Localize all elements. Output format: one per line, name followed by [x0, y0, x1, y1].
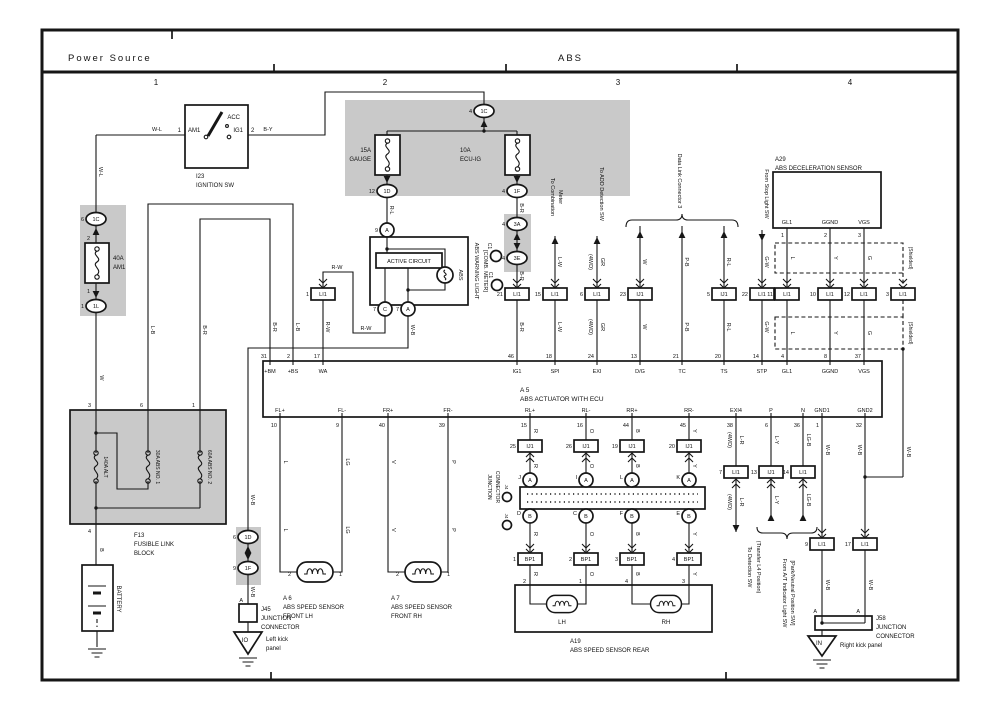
connector-id: C1 — [487, 272, 493, 279]
svg-text:B: B — [528, 514, 532, 520]
svg-text:3A: 3A — [514, 222, 521, 228]
svg-text:LI1: LI1 — [732, 470, 740, 476]
svg-text:J: J — [518, 475, 521, 481]
svg-text:+BM: +BM — [264, 369, 276, 375]
svg-text:G-W: G-W — [763, 256, 769, 268]
junction-box-rr-plus: IJ119 — [612, 440, 644, 452]
svg-text:R-W: R-W — [361, 326, 373, 332]
svg-text:20: 20 — [715, 354, 721, 360]
junction-box-rl-minus: IJ126 — [566, 440, 598, 452]
component-name: IGNITION SW — [196, 183, 234, 189]
svg-text:31: 31 — [261, 354, 267, 360]
svg-text:Y: Y — [832, 331, 838, 335]
svg-text:1C: 1C — [92, 217, 99, 223]
a19-box — [515, 585, 712, 632]
ground-location: Left kick — [266, 637, 289, 643]
pin-number: 2 — [87, 236, 90, 242]
actuator-top-pins: 31+BM 2+BS 17WA 46IG1 18SPI 24EXI 13D/G … — [261, 354, 870, 375]
svg-text:P-B: P-B — [683, 322, 689, 332]
svg-text:1D: 1D — [244, 535, 251, 541]
connector-7a: A 7 — [396, 302, 415, 316]
junction-connector-label: CONNECTOR — [494, 471, 500, 504]
svg-text:L: L — [282, 460, 288, 463]
svg-text:23: 23 — [620, 292, 626, 298]
battery: BATTERY — [82, 565, 121, 657]
svg-text:W: W — [641, 259, 647, 265]
svg-text:R: R — [532, 464, 538, 468]
junction-box-ig1: LI121 — [497, 288, 529, 300]
pin-number: 2 — [824, 233, 827, 239]
svg-text:W-B: W-B — [409, 325, 415, 336]
svg-text:R-L: R-L — [725, 258, 731, 267]
sensor-side: LH — [558, 620, 566, 626]
dlc-brace — [626, 214, 738, 227]
dest-stop-light-sw: From Stop Light SW — [763, 169, 769, 219]
pin-number: 4 — [625, 579, 628, 585]
ground-triangle — [808, 636, 836, 656]
connector-id: J4 — [504, 485, 509, 490]
svg-text:SPI: SPI — [551, 369, 560, 375]
junction-box-ts: IJ15 — [707, 288, 736, 300]
svg-text:P: P — [769, 408, 773, 414]
pin-number: 1 — [192, 403, 195, 409]
svg-text:17: 17 — [845, 542, 851, 548]
svg-text:IJ1: IJ1 — [720, 292, 727, 298]
connector-ja: AJ — [518, 473, 537, 487]
svg-text:LI1: LI1 — [861, 542, 869, 548]
svg-text:3E: 3E — [514, 256, 521, 262]
svg-text:L: L — [789, 256, 795, 259]
connector-eb: BE — [676, 509, 696, 523]
svg-text:FL+: FL+ — [275, 408, 285, 414]
svg-text:5: 5 — [707, 292, 710, 298]
dest-combination-meter: To Combination — [549, 178, 555, 216]
svg-text:14: 14 — [753, 354, 759, 360]
component-id: I23 — [196, 174, 205, 180]
column-number: 4 — [848, 78, 853, 87]
svg-text:GR: GR — [599, 258, 605, 266]
dest-detection-sw: To Detection SW — [746, 547, 752, 589]
c1-connector-mark — [491, 251, 502, 262]
section-title-power-source: Power Source — [68, 53, 152, 64]
svg-text:20: 20 — [669, 444, 675, 450]
svg-text:24: 24 — [588, 354, 594, 360]
svg-text:4: 4 — [502, 189, 505, 195]
svg-text:9: 9 — [375, 228, 378, 234]
component-name: FUSIBLE LINK — [134, 542, 174, 548]
svg-text:18: 18 — [546, 354, 552, 360]
sensor-side: RH — [662, 620, 671, 626]
pin-number: 4 — [88, 529, 91, 535]
ground-code: IO — [242, 638, 249, 644]
component-name: ABS DECELERATION SENSOR — [775, 166, 863, 172]
svg-text:+BS: +BS — [288, 369, 299, 375]
svg-text:R-W: R-W — [324, 322, 330, 334]
component-name: BATTERY — [115, 585, 121, 612]
junction-boxes-upper: LI11 LI121 LI115 LI16 IJ123 IJ15 LI122 L… — [306, 288, 915, 300]
svg-text:4: 4 — [469, 109, 472, 115]
svg-text:W-L: W-L — [97, 167, 103, 177]
pin-number: 2 — [523, 579, 526, 585]
connector-db: BD — [517, 509, 537, 523]
svg-text:LI1: LI1 — [783, 292, 791, 298]
svg-text:LI1: LI1 — [826, 292, 834, 298]
shielded-label: (Shielded) — [907, 322, 913, 345]
fuse-name: 60A ABS NO. 2 — [206, 450, 212, 484]
abs-warning-light-meter: A 9 ACTIVE CIRCUIT ABS C 7 A 7 ABS WARNI… — [370, 223, 503, 316]
fuse-name: 140A ALT — [102, 456, 108, 477]
svg-text:L-W: L-W — [556, 257, 562, 268]
svg-text:B-R: B-R — [271, 322, 277, 332]
shielded-label: (Shielded) — [907, 247, 913, 270]
svg-text:17: 17 — [314, 354, 320, 360]
svg-text:B-R: B-R — [518, 271, 524, 281]
svg-text:B: B — [634, 532, 640, 536]
dest-add-detection-sw: To ADD Detection SW — [598, 167, 604, 222]
svg-text:F: F — [620, 511, 624, 517]
svg-text:8: 8 — [824, 354, 827, 360]
pin-number: 1 — [178, 128, 182, 134]
svg-text:1D: 1D — [383, 189, 390, 195]
svg-text:1C: 1C — [480, 109, 487, 115]
svg-text:15: 15 — [521, 423, 527, 429]
svg-text:LG-B: LG-B — [805, 434, 811, 447]
svg-text:V: V — [390, 528, 396, 532]
svg-text:P-B: P-B — [683, 257, 689, 267]
svg-text:1F: 1F — [514, 189, 521, 195]
svg-text:W-B: W-B — [867, 580, 873, 591]
junction-box-bp1-3: BP13 — [615, 553, 644, 565]
fuse-name: 30A ABS NO. 1 — [154, 450, 160, 484]
svg-text:(4WD): (4WD) — [587, 319, 593, 335]
svg-text:IJ1: IJ1 — [767, 470, 774, 476]
svg-text:9: 9 — [336, 423, 339, 429]
svg-text:C: C — [383, 307, 387, 313]
svg-text:O: O — [588, 532, 594, 537]
connector-ka: AK — [676, 473, 696, 487]
fuse-name: ECU-IG — [460, 157, 481, 163]
abs-deceleration-sensor: A29 ABS DECELERATION SENSOR GL1 GGND VGS… — [773, 157, 913, 349]
svg-text:FL-: FL- — [338, 408, 346, 414]
fuse-rating: 10A — [460, 148, 471, 154]
svg-text:26: 26 — [566, 444, 572, 450]
component-id: A19 — [570, 639, 581, 645]
pin-letter: A — [856, 609, 860, 615]
svg-text:W: W — [98, 375, 104, 381]
column-number: 3 — [616, 78, 621, 87]
pin-name: GL1 — [782, 220, 792, 226]
svg-text:G-W: G-W — [763, 321, 769, 333]
svg-text:1: 1 — [513, 557, 516, 563]
svg-text:RR-: RR- — [684, 408, 694, 414]
rear-junction-connector-box — [520, 487, 705, 509]
svg-text:VGS: VGS — [858, 369, 870, 375]
pin-letter: A — [239, 598, 243, 604]
svg-text:W-B: W-B — [824, 580, 830, 591]
svg-text:G: G — [866, 331, 872, 335]
svg-text:IJ1: IJ1 — [685, 444, 692, 450]
svg-text:LI1: LI1 — [799, 470, 807, 476]
svg-text:GR: GR — [599, 323, 605, 331]
svg-text:EXI4: EXI4 — [730, 408, 742, 414]
svg-text:B: B — [584, 514, 588, 520]
svg-text:L-B: L-B — [149, 326, 155, 335]
connector-ia: AI — [575, 473, 593, 487]
junction-box-bp1-4: BP14 — [672, 553, 701, 565]
svg-text:LG-B: LG-B — [805, 494, 811, 507]
component-id: J58 — [876, 616, 886, 622]
svg-text:GL1: GL1 — [782, 369, 792, 375]
connector-la: AL — [620, 473, 639, 487]
pin-name: GGND — [822, 220, 839, 226]
connector-fb: BF — [620, 509, 639, 523]
svg-text:14: 14 — [783, 470, 789, 476]
svg-text:L-Y: L-Y — [773, 496, 779, 505]
svg-text:LI1: LI1 — [899, 292, 907, 298]
svg-text:(4WD): (4WD) — [726, 432, 732, 448]
svg-text:B-R: B-R — [518, 322, 524, 332]
svg-text:L-R: L-R — [738, 436, 744, 445]
junction-box-gnd2: LI117 — [845, 538, 877, 550]
svg-text:BP1: BP1 — [684, 557, 694, 563]
svg-text:32: 32 — [856, 423, 862, 429]
svg-text:RL-: RL- — [582, 408, 591, 414]
svg-text:GGND: GGND — [822, 369, 839, 375]
svg-text:G: G — [866, 256, 872, 260]
svg-text:Y: Y — [691, 464, 697, 468]
acc-label: ACC — [227, 115, 240, 121]
svg-text:46: 46 — [508, 354, 514, 360]
ground-code: IN — [816, 641, 822, 647]
svg-text:6: 6 — [765, 423, 768, 429]
svg-text:E: E — [676, 511, 680, 517]
svg-text:9: 9 — [805, 542, 808, 548]
svg-text:D/G: D/G — [635, 369, 645, 375]
am1-label: AM1 — [188, 128, 201, 134]
svg-text:A: A — [528, 478, 532, 484]
svg-text:I: I — [575, 475, 577, 481]
svg-text:GND2: GND2 — [857, 408, 872, 414]
svg-text:13: 13 — [631, 354, 637, 360]
svg-text:16: 16 — [577, 423, 583, 429]
svg-text:BP1: BP1 — [581, 557, 591, 563]
svg-text:39: 39 — [439, 423, 445, 429]
meter-label: ABS WARNING LIGHT — [473, 243, 479, 300]
svg-text:13: 13 — [751, 470, 757, 476]
svg-text:9: 9 — [233, 566, 236, 572]
component-name: ABS SPEED SENSOR — [283, 605, 345, 611]
pin-number: 2 — [288, 572, 291, 578]
svg-text:IJ1: IJ1 — [636, 292, 643, 298]
svg-text:W-B: W-B — [249, 495, 255, 506]
svg-text:R-L: R-L — [725, 323, 731, 332]
svg-text:W: W — [641, 324, 647, 330]
svg-text:4: 4 — [781, 354, 784, 360]
component-id: A 5 — [520, 387, 530, 394]
connector-9a: A 9 — [375, 223, 394, 237]
component-name: JUNCTION — [261, 616, 291, 622]
component-name: CONNECTOR — [261, 625, 300, 631]
junction-box-bp1-1: BP11 — [513, 553, 542, 565]
svg-text:A: A — [385, 228, 389, 234]
pin-number: 3 — [88, 403, 91, 409]
j4-connector-mark — [503, 493, 512, 502]
junction-box-dg: IJ123 — [620, 288, 652, 300]
section-title-abs: ABS — [558, 53, 583, 64]
ig1-label: IG1 — [233, 128, 243, 134]
svg-text:R: R — [532, 572, 538, 576]
svg-text:FR-: FR- — [443, 408, 452, 414]
right-kick-ground: A A J58 JUNCTION CONNECTOR IN Right kick… — [808, 609, 915, 668]
svg-text:A: A — [584, 478, 588, 484]
svg-text:Y: Y — [691, 429, 697, 433]
pin-number: 1 — [87, 289, 90, 295]
svg-text:TC: TC — [678, 369, 685, 375]
svg-text:7: 7 — [373, 307, 376, 313]
svg-text:11: 11 — [767, 292, 773, 298]
svg-text:4: 4 — [502, 222, 505, 228]
pin-number: 3 — [682, 579, 685, 585]
svg-text:2: 2 — [287, 354, 290, 360]
svg-text:TS: TS — [720, 369, 727, 375]
svg-text:FR+: FR+ — [383, 408, 394, 414]
svg-text:WA: WA — [319, 369, 328, 375]
svg-text:L: L — [282, 528, 288, 531]
svg-text:B: B — [98, 548, 104, 552]
component-id: A 6 — [283, 596, 292, 602]
j4-connector-mark — [503, 521, 512, 530]
c1-connector-mark — [492, 280, 503, 291]
svg-text:IJ1: IJ1 — [526, 444, 533, 450]
svg-text:25: 25 — [510, 444, 516, 450]
svg-text:LI1: LI1 — [818, 542, 826, 548]
svg-text:3: 3 — [886, 292, 889, 298]
svg-text:(4WD): (4WD) — [587, 254, 593, 270]
connector-id: C1 — [486, 243, 492, 250]
abs-actuator: A 5 ABS ACTUATOR WITH ECU 31+BM 2+BS 17W… — [261, 354, 882, 429]
component-name: FRONT RH — [391, 614, 422, 620]
svg-text:BP1: BP1 — [627, 557, 637, 563]
component-id: A 7 — [391, 596, 400, 602]
svg-text:6: 6 — [81, 217, 84, 223]
svg-text:21: 21 — [497, 292, 503, 298]
component-name: CONNECTOR — [876, 634, 915, 640]
svg-text:R: R — [532, 532, 538, 536]
svg-text:22: 22 — [742, 292, 748, 298]
svg-text:LI1: LI1 — [593, 292, 601, 298]
svg-text:A: A — [406, 307, 410, 313]
svg-text:P: P — [450, 528, 456, 532]
svg-text:B-R: B-R — [201, 325, 207, 335]
svg-text:10: 10 — [271, 423, 277, 429]
right-columns: LI17 IJ113 LI114 LI19 LI117 — [719, 466, 877, 550]
j45-box — [239, 604, 257, 622]
svg-text:L-W: L-W — [556, 322, 562, 333]
svg-text:L-B: L-B — [294, 323, 300, 332]
dest-data-link-connector: Data Link Connector 3 — [676, 154, 682, 209]
svg-text:STP: STP — [757, 369, 768, 375]
junction-box-spi: LI115 — [535, 288, 567, 300]
ground-location: panel — [266, 646, 281, 652]
svg-text:R-L: R-L — [388, 206, 394, 215]
svg-text:K: K — [676, 475, 680, 481]
abs-wiring-diagram: Power Source ABS 1 2 3 4 — [0, 0, 1000, 706]
svg-text:R: R — [532, 429, 538, 433]
pin-number: 2 — [396, 572, 399, 578]
svg-text:B: B — [634, 429, 640, 433]
dest-at-indicator: From A/T Indicator Light SW — [781, 559, 787, 629]
junction-box-gnd1: LI19 — [805, 538, 834, 550]
svg-text:B-R: B-R — [518, 203, 524, 213]
svg-text:IJ1: IJ1 — [582, 444, 589, 450]
svg-text:37: 37 — [855, 354, 861, 360]
svg-text:4: 4 — [502, 256, 505, 262]
component-id: J45 — [261, 607, 271, 613]
svg-text:W-B: W-B — [824, 445, 830, 456]
svg-text:B-Y: B-Y — [263, 127, 273, 133]
svg-text:C: C — [573, 511, 577, 517]
component-name: JUNCTION — [876, 625, 906, 631]
junction-box-rl-plus: IJ125 — [510, 440, 542, 452]
svg-text:A: A — [687, 478, 691, 484]
svg-text:B: B — [687, 514, 691, 520]
svg-text:38: 38 — [727, 423, 733, 429]
dest-detection-sw: (Transfer L4 Position) — [755, 541, 761, 594]
active-circuit-label: ACTIVE CIRCUIT — [387, 259, 431, 265]
pin-number: 1 — [447, 572, 450, 578]
rear-sensor-chain: IJ125 IJ126 IJ119 IJ120 JUNCTION CONNECT… — [486, 440, 712, 654]
connector-7c: C 7 — [373, 302, 392, 316]
svg-text:1: 1 — [306, 292, 309, 298]
pin-number: 2 — [251, 128, 255, 134]
svg-text:19: 19 — [612, 444, 618, 450]
svg-text:O: O — [588, 464, 594, 469]
svg-text:3: 3 — [615, 557, 618, 563]
fuse-rating: 15A — [360, 148, 371, 154]
svg-text:O: O — [588, 572, 594, 577]
svg-text:1: 1 — [81, 304, 84, 310]
svg-text:RR+: RR+ — [626, 408, 637, 414]
component-name: ABS SPEED SENSOR — [391, 605, 453, 611]
svg-text:2: 2 — [569, 557, 572, 563]
svg-text:6: 6 — [233, 535, 236, 541]
component-name: ABS ACTUATOR WITH ECU — [520, 396, 604, 403]
svg-text:W-L: W-L — [152, 127, 162, 133]
connector-id: J4 — [504, 514, 509, 519]
svg-text:LI1: LI1 — [758, 292, 766, 298]
svg-text:LI1: LI1 — [319, 292, 327, 298]
junction-box-exi4: LI17 — [719, 466, 748, 478]
abs-bulb-label: ABS — [457, 269, 463, 280]
svg-text:12: 12 — [844, 292, 850, 298]
svg-text:V: V — [390, 460, 396, 464]
svg-text:L-Y: L-Y — [773, 436, 779, 445]
svg-text:6: 6 — [580, 292, 583, 298]
fuse-rating: 40A — [113, 256, 124, 262]
junction-box-ggnd: LI110 — [810, 288, 842, 300]
svg-text:L: L — [620, 475, 623, 481]
connector-cb: BC — [573, 509, 593, 523]
wiring-diagram-page: Power Source ABS 1 2 3 4 — [0, 0, 1000, 706]
svg-text:L: L — [789, 331, 795, 334]
column-number: 1 — [154, 78, 159, 87]
junction-box-wa: LI11 — [306, 288, 335, 300]
svg-text:Y: Y — [691, 532, 697, 536]
svg-text:B: B — [630, 514, 634, 520]
svg-text:LI1: LI1 — [860, 292, 868, 298]
svg-text:45: 45 — [680, 423, 686, 429]
svg-text:36: 36 — [794, 423, 800, 429]
